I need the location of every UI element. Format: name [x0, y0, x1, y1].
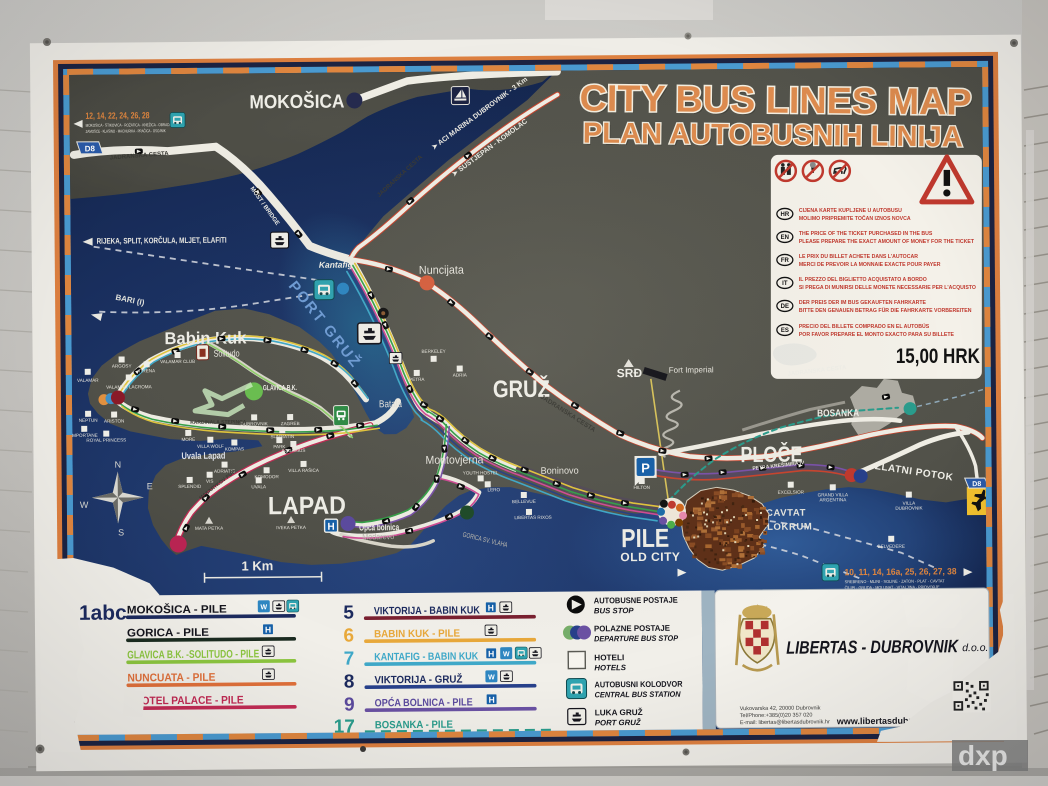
svg-text:IVEKA PETKA: IVEKA PETKA [276, 525, 307, 530]
svg-text:Uvala Lapad: Uvala Lapad [181, 451, 225, 462]
svg-text:MERCI DE PREVOIR LA MONNAIE EX: MERCI DE PREVOIR LA MONNAIE EXACTE POUR … [799, 262, 941, 268]
svg-text:IL PREZZO DEL BIGLIETTO ACQUIS: IL PREZZO DEL BIGLIETTO ACQUISTATO A BOR… [799, 277, 927, 283]
svg-text:DE: DE [781, 304, 789, 310]
svg-text:OLD CITY: OLD CITY [620, 550, 680, 565]
svg-text:8: 8 [344, 671, 355, 692]
svg-text:DER PREIS DER IM BUS GEKAUFTEN: DER PREIS DER IM BUS GEKAUFTEN FAHRKARTE [799, 300, 927, 306]
svg-text:W: W [260, 604, 267, 611]
svg-text:CAVTAT: CAVTAT [766, 508, 806, 519]
svg-text:OPĆA BOLNICA - PILE: OPĆA BOLNICA - PILE [375, 695, 473, 709]
svg-text:Montovjerna: Montovjerna [425, 454, 484, 467]
svg-text:SREBRENO - MLINI - SOLINE - ZA: SREBRENO - MLINI - SOLINE - ZATON - PLAT… [845, 578, 945, 584]
svg-text:GLAVICA B.K.: GLAVICA B.K. [263, 383, 297, 392]
svg-text:ARGENTINA: ARGENTINA [819, 497, 847, 502]
svg-text:KANTAFIG - BABIN KUK: KANTAFIG - BABIN KUK [374, 650, 478, 663]
svg-text:AUTOBUSNE POSTAJE: AUTOBUSNE POSTAJE [594, 596, 679, 606]
svg-text:7: 7 [344, 648, 355, 669]
svg-text:MORE: MORE [181, 437, 195, 442]
svg-text:EN: EN [781, 235, 789, 241]
svg-text:Tel/Phone:+385(0)20 357 020: Tel/Phone:+385(0)20 357 020 [740, 712, 813, 719]
svg-text:ZAGREB: ZAGREB [281, 421, 300, 426]
svg-text:DUBROVNIK: DUBROVNIK [895, 506, 923, 511]
svg-text:10, 11, 14, 16a, 25, 26, 27, 3: 10, 11, 14, 16a, 25, 26, 27, 38 [844, 566, 956, 577]
svg-text:ROYAL PRINCESS: ROYAL PRINCESS [86, 437, 126, 442]
svg-text:LOKRUM: LOKRUM [767, 521, 812, 532]
svg-text:HR: HR [781, 212, 790, 218]
svg-text:VIKTORIJA - GRUŽ: VIKTORIJA - GRUŽ [374, 673, 463, 687]
svg-text:CITY BUS LINES MAP: CITY BUS LINES MAP [579, 78, 971, 123]
svg-text:Vukovarska 42, 20000 Dubrovnik: Vukovarska 42, 20000 Dubrovnik [740, 705, 821, 712]
svg-text:MOKOŠICA: MOKOŠICA [249, 91, 344, 114]
svg-text:Opća bolnica: Opća bolnica [359, 522, 400, 532]
svg-text:9: 9 [344, 694, 355, 715]
svg-text:LE PRIX DU BILLET ACHETE DANS: LE PRIX DU BILLET ACHETE DANS L'AUTOCAR [799, 254, 918, 260]
svg-text:VIS: VIS [206, 479, 213, 484]
svg-text:TIRENA: TIRENA [138, 368, 156, 373]
svg-text:Medarevo: Medarevo [362, 532, 395, 541]
svg-text:MOKOŠICA - PILE: MOKOŠICA - PILE [127, 603, 227, 617]
svg-text:Nuncijata: Nuncijata [419, 265, 465, 277]
svg-text:ES: ES [781, 328, 789, 334]
svg-text:UVALA: UVALA [251, 484, 267, 489]
svg-text:Kantafig: Kantafig [319, 259, 354, 269]
svg-text:ARISTON: ARISTON [104, 418, 124, 423]
svg-text:PRECIO DEL BILLETE COMPRADO EN: PRECIO DEL BILLETE COMPRADO EN EL AUTOBÚ… [799, 323, 930, 330]
svg-text:DEPARTURE BUS STOP: DEPARTURE BUS STOP [594, 634, 679, 644]
svg-text:Fort Imperial: Fort Imperial [669, 365, 714, 374]
svg-text:VILLA RAŠICA: VILLA RAŠICA [288, 467, 320, 473]
svg-text:LIBERTAS RIXOS: LIBERTAS RIXOS [514, 515, 551, 520]
svg-text:Boninovo: Boninovo [541, 466, 579, 477]
svg-text:SI PREGA DI MUNIRSI DELLE MONE: SI PREGA DI MUNIRSI DELLE MONETE NECESSA… [799, 285, 976, 291]
svg-text:HOTELI: HOTELI [594, 653, 624, 662]
svg-text:S: S [118, 527, 124, 537]
svg-text:FR: FR [781, 258, 790, 264]
svg-text:ARGOSY: ARGOSY [112, 363, 132, 368]
svg-text:ADRIA: ADRIA [453, 372, 468, 377]
svg-text:Solitudo: Solitudo [214, 348, 240, 359]
svg-text:W: W [503, 651, 510, 658]
svg-text:BUS STOP: BUS STOP [594, 606, 635, 615]
svg-text:VILLA WOLF: VILLA WOLF [197, 444, 224, 449]
svg-text:NEPTUN: NEPTUN [79, 418, 98, 423]
svg-text:RIJEKA, SPLIT, KORČULA, MLJET,: RIJEKA, SPLIT, KORČULA, MLJET, ELAFITI [97, 236, 227, 246]
svg-text:ZAMOŠĆE - KLAŠINO - MACHURIKA: ZAMOŠĆE - KLAŠINO - MACHURIKA - PRAČICA … [86, 128, 166, 134]
svg-text:P: P [641, 460, 650, 475]
svg-text:BOSANKA - PILE: BOSANKA - PILE [375, 719, 453, 732]
svg-text:15,00 HRK: 15,00 HRK [896, 345, 980, 368]
svg-text:BOSANKA: BOSANKA [817, 408, 859, 419]
svg-text:D8: D8 [85, 144, 96, 153]
svg-text:CIJENA KARTE KUPLJENE U AUTOBU: CIJENA KARTE KUPLJENE U AUTOBUSU [799, 208, 902, 214]
svg-text:POLAZNE POSTAJE: POLAZNE POSTAJE [594, 624, 671, 634]
svg-text:VALAMAR CLUB: VALAMAR CLUB [160, 359, 195, 364]
svg-text:HILTON: HILTON [634, 485, 650, 490]
svg-text:BELLEVUE: BELLEVUE [512, 499, 536, 504]
svg-text:1abc: 1abc [79, 601, 127, 624]
svg-text:KOMPAS: KOMPAS [225, 446, 244, 451]
svg-text:SRĐ: SRĐ [617, 366, 643, 380]
svg-text:VALAMAR LACROMA: VALAMAR LACROMA [106, 384, 153, 389]
svg-text:AQUARIUS: AQUARIUS [281, 448, 305, 453]
svg-text:12, 14, 22, 24, 26, 28: 12, 14, 22, 24, 26, 28 [85, 110, 149, 121]
svg-text:BERKELEY: BERKELEY [421, 349, 445, 354]
svg-text:E: E [147, 481, 153, 491]
svg-text:Batala: Batala [379, 399, 402, 410]
svg-text:KARDINALA STEPINCA: KARDINALA STEPINCA [190, 419, 247, 425]
svg-text:PLAN AUTOBUSNIH LINIJA: PLAN AUTOBUSNIH LINIJA [583, 117, 963, 153]
svg-text:E-mail: libertas@libertasdubro: E-mail: libertas@libertasdubrovnik.hr [740, 719, 830, 726]
svg-text:BELVEDERE: BELVEDERE [878, 544, 905, 549]
svg-text:BABIN KUK - PILE: BABIN KUK - PILE [374, 628, 460, 641]
svg-text:PETRA: PETRA [409, 377, 425, 382]
svg-text:MOKOŠICA - ŠTIKOVICA - ROŽATIC: MOKOŠICA - ŠTIKOVICA - ROŽATICA - KNEŽIC… [86, 122, 172, 128]
svg-text:5: 5 [343, 602, 354, 623]
svg-text:W: W [80, 500, 89, 510]
svg-text:MOLIMO PRIPREMITE TOČAN IZNOS: MOLIMO PRIPREMITE TOČAN IZNOS NOVCA [799, 215, 911, 222]
svg-text:POR FAVOR PREPARE EL MONTO EXA: POR FAVOR PREPARE EL MONTO EXACTO PARA S… [799, 332, 955, 338]
svg-text:SPLENDID: SPLENDID [178, 484, 202, 489]
svg-text:W: W [488, 674, 495, 681]
svg-text:NUNCUATA - PILE: NUNCUATA - PILE [127, 672, 215, 685]
svg-text:YOUTH HOSTEL: YOUTH HOSTEL [463, 470, 499, 475]
svg-text:d.o.o.: d.o.o. [962, 642, 988, 654]
svg-text:LIBERTAS - DUBROVNIK: LIBERTAS - DUBROVNIK [786, 636, 960, 658]
svg-text:VIKTORIJA - BABIN KUK: VIKTORIJA - BABIN KUK [374, 604, 480, 617]
svg-text:PORT GRUŽ: PORT GRUŽ [595, 718, 641, 727]
svg-text:AUTOBUSNI KOLODVOR: AUTOBUSNI KOLODVOR [594, 680, 682, 690]
svg-text:1 Km: 1 Km [241, 558, 273, 573]
svg-text:dxp: dxp [958, 740, 1008, 771]
svg-text:HOTELS: HOTELS [594, 663, 626, 672]
svg-text:EXCELSIOR: EXCELSIOR [778, 490, 805, 495]
svg-text:OTEL PALACE - PILE: OTEL PALACE - PILE [142, 694, 244, 707]
svg-text:6: 6 [343, 625, 354, 646]
svg-text:IT: IT [782, 281, 788, 287]
svg-text:LERO: LERO [488, 487, 501, 492]
svg-text:LUKA GRUŽ: LUKA GRUŽ [595, 706, 643, 717]
svg-text:VALAMAR: VALAMAR [77, 378, 99, 383]
svg-text:MATA PETKA: MATA PETKA [195, 526, 224, 531]
svg-text:CENTRAL BUS STATION: CENTRAL BUS STATION [595, 690, 681, 700]
svg-text:N: N [115, 460, 122, 470]
svg-text:GORICA - PILE: GORICA - PILE [127, 627, 209, 640]
svg-text:BITTE DEN GENAUEN BETRAG FÜR D: BITTE DEN GENAUEN BETRAG FÜR DIE FAHRKAR… [799, 307, 972, 314]
svg-text:D8: D8 [972, 481, 981, 488]
svg-text:LAPAD: LAPAD [268, 492, 346, 521]
svg-text:PILE: PILE [621, 523, 669, 553]
svg-text:THE PRICE OF THE TICKET PURCHA: THE PRICE OF THE TICKET PURCHASED IN THE… [799, 231, 933, 237]
svg-text:PLEASE PREPARE THE EXACT AMOUN: PLEASE PREPARE THE EXACT AMOUNT OF MONEY… [799, 239, 975, 245]
